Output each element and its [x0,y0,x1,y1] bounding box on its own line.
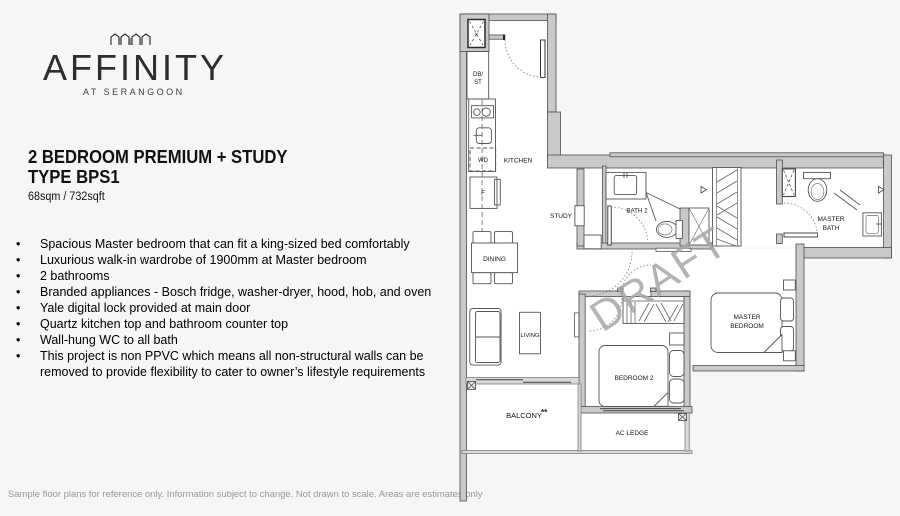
svg-text:x: x [475,32,478,38]
svg-text:WD: WD [478,158,489,164]
svg-text:AC LEDGE: AC LEDGE [616,430,650,437]
svg-text:DB/: DB/ [473,72,483,78]
svg-text:STUDY: STUDY [550,213,573,220]
svg-text:BALCONY: BALCONY [506,411,542,420]
svg-text:ST: ST [474,80,482,86]
svg-text:**: ** [541,408,548,417]
svg-text:BEDROOM: BEDROOM [730,323,764,330]
svg-text:BATH 2: BATH 2 [626,208,648,215]
svg-text:BATH: BATH [823,225,840,232]
svg-text:BEDROOM 2: BEDROOM 2 [614,375,653,382]
svg-text:DINING: DINING [483,256,506,263]
svg-text:F: F [481,191,485,197]
svg-text:MASTER: MASTER [817,216,844,223]
svg-text:MASTER: MASTER [733,314,760,321]
svg-text:KITCHEN: KITCHEN [504,158,533,165]
svg-text:LIVING: LIVING [520,333,539,339]
